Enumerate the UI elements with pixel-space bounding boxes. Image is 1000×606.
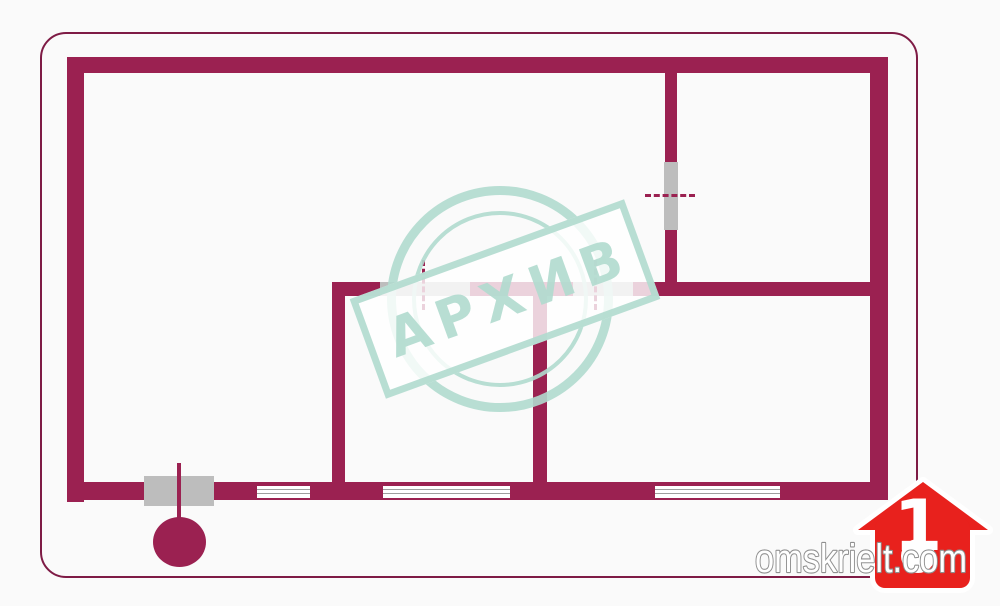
door-swing-marker — [594, 260, 597, 310]
wall-segment — [67, 57, 84, 502]
door-opening — [380, 282, 470, 296]
entrance-door-line — [177, 463, 181, 519]
door-swing-marker — [422, 260, 425, 310]
door-swing-marker — [645, 194, 695, 197]
window — [383, 486, 510, 498]
door-opening — [573, 282, 633, 296]
wall-segment — [332, 282, 345, 500]
site-watermark-text: omskrielt.com — [755, 537, 967, 581]
wall-segment — [533, 296, 547, 482]
window — [257, 486, 310, 498]
wall-segment — [67, 57, 888, 73]
wall-segment — [870, 57, 888, 500]
floorplan-canvas: АРХИВ 1 omskrielt.com — [0, 0, 1000, 606]
omskrielt-logo: 1 omskrielt.com — [715, 440, 1000, 606]
entrance-porch-circle — [153, 517, 206, 567]
